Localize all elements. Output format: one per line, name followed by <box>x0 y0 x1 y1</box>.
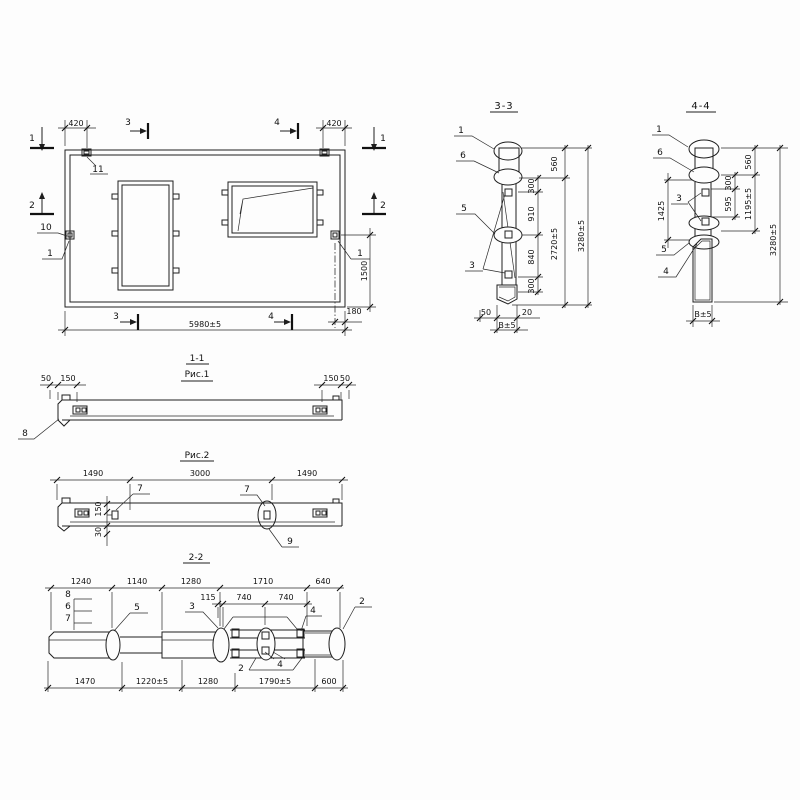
fig-2: Рис.2 1490 3000 1490 150 30 7 7 9 <box>50 451 348 547</box>
part-label-7: 7 <box>65 614 71 624</box>
part-label-2-right: 2 <box>359 597 365 607</box>
part-label-7-left: 7 <box>137 484 143 494</box>
part-label-1: 1 <box>458 126 464 136</box>
dim-1240: 1240 <box>71 577 91 586</box>
dim-1280-top: 1280 <box>181 577 201 586</box>
mark-1-left: 1 <box>29 134 35 144</box>
dim-560: 560 <box>550 156 559 171</box>
dim-150-right: 150 <box>323 374 338 383</box>
dim-3280: 3280±5 <box>577 220 586 252</box>
part-label-3: 3 <box>189 602 195 612</box>
part-label-5: 5 <box>134 603 140 613</box>
dim-1710: 1710 <box>253 577 273 586</box>
label-1-left: 1 <box>47 249 53 259</box>
part-label-4-bottom: 4 <box>277 660 283 670</box>
label-10: 10 <box>40 223 52 233</box>
section-4-4-title: 4-4 <box>691 101 710 112</box>
part-label-7-right: 7 <box>244 485 250 495</box>
section-3-3-title: 3-3 <box>494 101 513 112</box>
dim-1490-left: 1490 <box>83 469 103 478</box>
dim-1500: 1500 <box>360 261 369 281</box>
part-label-3: 3 <box>676 194 682 204</box>
plan-view: 420 420 5980±5 1500 180 1 1 2 2 3 3 4 4 … <box>29 118 386 336</box>
section-3-3: 3-3 1 6 5 3 300 910 840 300 560 2720±5 3… <box>454 101 592 333</box>
dim-50-right: 50 <box>340 374 350 383</box>
dim-50-left: 50 <box>41 374 51 383</box>
dim-5980: 5980±5 <box>189 320 221 329</box>
dim-600: 600 <box>321 677 336 686</box>
part-label-4-top: 4 <box>310 606 316 616</box>
dim-115: 115 <box>200 593 215 602</box>
section-1-1-title: 1-1 <box>190 354 205 364</box>
dim-640: 640 <box>315 577 330 586</box>
dim-1280-bottom: 1280 <box>198 677 218 686</box>
part-label-2-mid: 2 <box>238 664 244 674</box>
dim-50: 50 <box>481 308 491 317</box>
side-embeds <box>66 231 339 239</box>
part-label-6: 6 <box>460 151 466 161</box>
dim-3000: 3000 <box>190 469 210 478</box>
mark-3-bottom: 3 <box>113 312 119 322</box>
dim-180: 180 <box>346 307 361 316</box>
dim-1220: 1220±5 <box>136 677 168 686</box>
dim-300: 300 <box>724 175 733 190</box>
dim-1470: 1470 <box>75 677 95 686</box>
dim-20: 20 <box>522 308 532 317</box>
dim-840: 840 <box>527 249 536 264</box>
section-1-1: 1-1 Рис.1 50 150 150 50 8 <box>18 354 356 439</box>
part-label-6: 6 <box>65 602 71 612</box>
mark-2-left: 2 <box>29 201 35 211</box>
part-label-5: 5 <box>461 204 467 214</box>
dim-1790: 1790±5 <box>259 677 291 686</box>
dim-2720: 2720±5 <box>550 228 559 260</box>
dim-740-right: 740 <box>278 593 293 602</box>
part-label-5: 5 <box>661 245 667 255</box>
dim-1195: 1195±5 <box>744 188 753 220</box>
technical-drawing: 420 420 5980±5 1500 180 1 1 2 2 3 3 4 4 … <box>0 0 800 800</box>
part-label-8: 8 <box>65 590 71 600</box>
fig1-caption: Рис.1 <box>185 370 210 380</box>
mark-4-bottom: 4 <box>268 312 274 322</box>
dim-300-top: 300 <box>527 178 536 193</box>
mark-1-right: 1 <box>380 134 386 144</box>
dim-1425: 1425 <box>657 201 666 221</box>
dim-300-bottom: 300 <box>527 278 536 293</box>
part-label-9: 9 <box>287 537 293 547</box>
part-label-6: 6 <box>657 148 663 158</box>
door-opening <box>118 181 173 290</box>
mark-4-top: 4 <box>274 118 280 128</box>
dim-420-right: 420 <box>326 119 341 128</box>
part-label-4: 4 <box>663 267 669 277</box>
mark-3-top: 3 <box>125 118 131 128</box>
dim-740-left: 740 <box>236 593 251 602</box>
dim-420-left: 420 <box>68 119 83 128</box>
fig2-title: Рис.2 <box>185 451 210 461</box>
drawing-sheet: 420 420 5980±5 1500 180 1 1 2 2 3 3 4 4 … <box>0 0 800 800</box>
section-4-4: 4-4 1 6 3 5 4 1425 300 595 560 1195±5 32… <box>652 101 788 327</box>
dim-b5: В±5 <box>498 321 515 330</box>
dim-3280: 3280±5 <box>769 224 778 256</box>
label-11: 11 <box>92 165 103 175</box>
part-label-8: 8 <box>22 429 28 439</box>
dim-150-left: 150 <box>60 374 75 383</box>
dim-1140: 1140 <box>127 577 147 586</box>
dim-910: 910 <box>527 206 536 221</box>
mark-2-right: 2 <box>380 201 386 211</box>
dim-b5: В±5 <box>694 310 711 319</box>
part-label-1: 1 <box>656 125 662 135</box>
dim-30-anchor: 30 <box>94 527 103 537</box>
label-1-right: 1 <box>357 249 363 259</box>
dim-560: 560 <box>744 154 753 169</box>
dim-595: 595 <box>724 196 733 211</box>
dim-1490-right: 1490 <box>297 469 317 478</box>
dim-150-anchor: 150 <box>94 501 103 516</box>
section-2-2-title: 2-2 <box>189 553 204 563</box>
section-2-2: 2-2 1240 1140 1280 1710 640 115 740 740 <box>44 553 372 692</box>
part-label-3: 3 <box>469 261 475 271</box>
